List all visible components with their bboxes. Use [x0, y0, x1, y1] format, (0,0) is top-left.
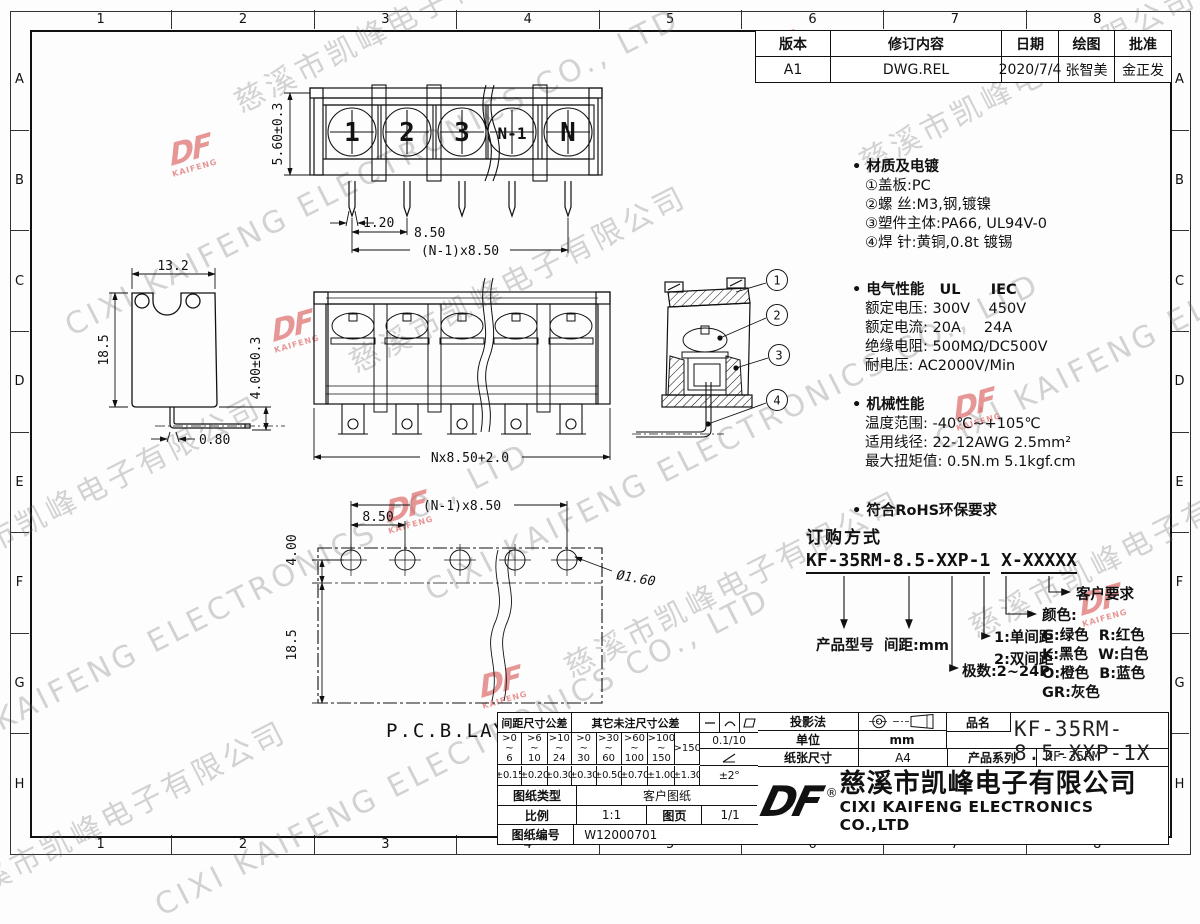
spec-rohs-section: • 符合RoHS环保要求	[852, 502, 1164, 521]
bracket-outline	[132, 293, 217, 407]
spec-line: • 符合RoHS环保要求	[852, 502, 1164, 521]
row-label: D	[1170, 332, 1189, 433]
tolerance-range: >60 ~ 100	[622, 733, 649, 765]
tolerance-range: >30 ~ 60	[597, 733, 622, 765]
spec-section-title: • 电气性能 UL IEC	[852, 281, 1164, 300]
tolerance-other-header: 其它未注尺寸公差	[572, 713, 701, 733]
title-block: 间距尺寸公差 其它未注尺寸公差 >0 ~ 6 >6 ~ 10 >10 ~ 24 …	[497, 712, 1169, 845]
company-name-cn: 慈溪市凯峰电子有限公司	[840, 770, 1168, 798]
tolerance-range: >6 ~ 10	[522, 733, 548, 765]
parallelogram-icon	[740, 713, 758, 733]
col-label: 6	[742, 10, 884, 29]
tolerance-value: ±0.30	[572, 766, 597, 786]
row-label: E	[10, 433, 29, 534]
spec-line: 最大扭矩值: 0.5N.m 5.1kgf.cm	[852, 453, 1164, 472]
separator-walls	[374, 278, 550, 432]
unit-label: 单位	[758, 731, 859, 749]
row-label: C	[1170, 231, 1189, 332]
revision-header: 绘图	[1059, 30, 1115, 56]
revision-header: 批准	[1115, 30, 1172, 56]
pcb-dimension-labels: (N-1)x8.50 8.50 4.00 18.5 Ø1.60 P.C.B.LA…	[285, 499, 657, 742]
spec-line: 适用线径: 22-12AWG 2.5mm²	[852, 434, 1164, 453]
tolerance-value: ±1.30	[675, 766, 700, 786]
col-label: 4	[457, 10, 599, 29]
dim-edge: 4.00	[285, 534, 300, 565]
paper-size-label: 纸张尺寸	[758, 749, 859, 767]
part-name-value: KF-35RM-8.5-XXP-1X	[1014, 717, 1168, 765]
dim-pitch: 8.50	[362, 510, 393, 525]
tolerance-range: >10 ~ 24	[548, 733, 572, 765]
block-body	[314, 292, 610, 404]
ordering-label-pitch: 间距:mm	[884, 634, 949, 655]
revision-date: 2020/7/4	[1002, 56, 1059, 82]
spec-line: 温度范围: -40℃~+105℃	[852, 415, 1164, 434]
angle-icon	[700, 749, 758, 766]
revision-table: 版本 修订内容 日期 绘图 批准 A1 DWG.REL 2020/7/4 张智美…	[755, 30, 1172, 83]
ordering-label-color-title: 颜色:	[1042, 604, 1077, 625]
pcb-layout-drawing: (N-1)x8.50 8.50 4.00 18.5 Ø1.60 P.C.B.LA…	[282, 495, 662, 745]
tolerance-value: ±0.20	[522, 766, 548, 786]
ordering-color-option: GR:灰色	[1042, 681, 1100, 702]
revision-header: 日期	[1002, 30, 1059, 56]
top-column-gutter: 1 2 3 4 5 6 7 8	[30, 10, 1168, 29]
screw-label: 3	[454, 118, 470, 148]
callout-balloons: 1 2 3 4	[767, 270, 790, 411]
screw-label: N-1	[498, 124, 527, 143]
section-front-view-drawing: Nx8.50+2.0	[230, 272, 650, 472]
row-label: C	[10, 231, 29, 332]
spec-line: ①盖板:PC	[852, 177, 1164, 196]
col-label: 3	[315, 10, 457, 29]
ordering-label-model: 产品型号	[816, 634, 874, 655]
callout-number: 4	[773, 394, 780, 408]
pcb-break-lines	[491, 550, 512, 701]
tolerance-value: ±1.00	[648, 766, 675, 786]
spec-material-section: • 材质及电镀 ①盖板:PC ②螺 丝:M3,钢,镀镍 ③塑件主体:PA66, …	[852, 158, 1164, 253]
drawing-type-label: 图纸类型	[498, 786, 577, 806]
pcb-dimensions	[312, 501, 612, 703]
spec-line: 额定电流: 20A 24A	[852, 319, 1164, 338]
screw-label: N	[560, 118, 576, 148]
company-name-en: CIXI KAIFENG ELECTRONICS CO.,LTD	[840, 798, 1168, 834]
section-side-view-drawing: 1 2 3 4	[632, 262, 807, 467]
dim-total: (N-1)x8.50	[421, 244, 499, 259]
dim-height: 5.60±0.3	[271, 103, 286, 166]
ordering-label-customer: 客户要求	[1076, 583, 1134, 604]
row-label: D	[10, 332, 29, 433]
dim-pin: 0.80	[199, 433, 230, 448]
page-label: 图页	[647, 806, 702, 825]
drawing-number-label: 图纸编号	[498, 825, 574, 844]
revision-approver: 金正发	[1115, 56, 1172, 82]
spec-line: ③塑件主体:PA66, UL94V-0	[852, 215, 1164, 234]
dim-total-label: Nx8.50+2.0	[431, 451, 509, 466]
col-label: 5	[600, 10, 742, 29]
tolerance-range: >0 ~ 30	[572, 733, 597, 765]
screw-number-labels: 1 2 3 N-1 N	[344, 118, 576, 148]
dim-width: 13.2	[157, 259, 188, 274]
drawing-number-value: W12000701	[574, 825, 758, 844]
screw-label: 1	[344, 118, 360, 148]
tolerance-range: >150	[675, 733, 700, 765]
flatness-tolerance-value: 0.1/10	[700, 733, 758, 749]
screw-label: 2	[399, 118, 415, 148]
straightness-icon	[700, 713, 720, 733]
projection-label: 投影法	[758, 713, 859, 731]
solder-pins	[349, 181, 571, 216]
scale-value: 1:1	[577, 806, 648, 825]
drawing-type-value: 客户图纸	[577, 786, 757, 806]
row-label: B	[10, 131, 29, 232]
title-block-right: 投影法 单位 mm 品名 KF-35RM-8	[758, 713, 1168, 844]
ordering-color-option: O:橙色 B:蓝色	[1042, 662, 1145, 683]
tolerance-pitch-header: 间距尺寸公差	[498, 713, 572, 733]
callout-number: 3	[775, 349, 782, 363]
callout-number: 1	[773, 274, 780, 288]
tolerance-value: ±0.70	[622, 766, 649, 786]
screw-clamp-section	[668, 326, 742, 395]
part-name-label: 品名	[946, 713, 1011, 732]
revision-version: A1	[756, 56, 831, 82]
spec-section-title: • 材质及电镀	[852, 158, 1164, 177]
spec-section-title: • 机械性能	[852, 396, 1164, 415]
row-label: F	[1170, 533, 1189, 634]
row-label: A	[1170, 30, 1189, 131]
registered-mark: ®	[826, 786, 838, 800]
dim-pitch: 8.50	[414, 226, 445, 241]
revision-header: 版本	[756, 30, 831, 56]
spec-line: 额定电压: 300V 450V	[852, 300, 1164, 319]
first-angle-projection-icon	[858, 713, 947, 731]
row-label: A	[10, 30, 29, 131]
specifications-block: • 材质及电镀 ①盖板:PC ②螺 丝:M3,钢,镀镍 ③塑件主体:PA66, …	[852, 158, 1164, 521]
row-label: H	[1170, 734, 1189, 834]
col-label: 1	[30, 10, 172, 29]
ordering-color-option: K:黑色 W:白色	[1042, 643, 1148, 664]
angle-tolerance-value: ±2°	[700, 766, 758, 786]
page-value: 1/1	[702, 806, 758, 825]
tolerance-value: ±0.15	[498, 766, 522, 786]
row-label: H	[10, 734, 29, 834]
spec-line: 耐电压: AC2000V/Min	[852, 357, 1164, 376]
revision-header-row: 版本 修订内容 日期 绘图 批准	[756, 30, 1172, 56]
spec-electrical-section: • 电气性能 UL IEC 额定电压: 300V 450V 额定电流: 20A …	[852, 281, 1164, 376]
row-label: B	[1170, 131, 1189, 232]
spec-line: ②螺 丝:M3,钢,镀镍	[852, 196, 1164, 215]
solder-pins	[338, 404, 586, 434]
tolerance-value: ±0.50	[597, 766, 622, 786]
company-block: DF ® 慈溪市凯峰电子有限公司 CIXI KAIFENG ELECTRONIC…	[758, 766, 1168, 838]
dim-height: 18.5	[97, 334, 112, 365]
callout-number: 2	[773, 309, 780, 323]
revision-drafter: 张智美	[1059, 56, 1115, 82]
tolerance-range: >100 ~ 150	[648, 733, 675, 765]
tolerance-value: ±0.30	[548, 766, 572, 786]
row-label: E	[1170, 433, 1189, 534]
scale-label: 比例	[498, 806, 577, 825]
row-label: G	[10, 634, 29, 735]
row-label: G	[1170, 634, 1189, 735]
revision-data-row: A1 DWG.REL 2020/7/4 张智美 金正发	[756, 56, 1172, 82]
flatness-arc-icon	[720, 713, 740, 733]
dim-pin-width: 1.20	[363, 216, 394, 231]
paper-size-value: A4	[859, 749, 948, 767]
pcb-holes	[335, 544, 583, 576]
dim-total: (N-1)x8.50	[423, 499, 501, 514]
dim-depth: 18.5	[285, 629, 300, 660]
row-label: F	[10, 533, 29, 634]
col-label: 8	[1027, 10, 1168, 29]
revision-description: DWG.REL	[831, 56, 1002, 82]
company-df-logo-icon: DF	[757, 782, 825, 822]
revision-header: 修订内容	[831, 30, 1002, 56]
tolerance-table: 间距尺寸公差 其它未注尺寸公差 >0 ~ 6 >6 ~ 10 >10 ~ 24 …	[498, 713, 758, 844]
col-label: 7	[884, 10, 1026, 29]
tolerance-range: >0 ~ 6	[498, 733, 522, 765]
ordering-color-option: G:绿色 R:红色	[1042, 624, 1145, 645]
unit-value: mm	[858, 731, 947, 749]
col-label: 2	[172, 10, 314, 29]
spec-mechanical-section: • 机械性能 温度范围: -40℃~+105℃ 适用线径: 22-12AWG 2…	[852, 396, 1164, 472]
left-row-gutter: A B C D E F G H	[10, 30, 29, 834]
front-view-drawing: 1 2 3 N-1 N 5.60±0.3 1.20 8.50 (N-1)x8.5…	[262, 85, 627, 263]
spec-line: ④焊 针:黄铜,0.8t 镀锡	[852, 234, 1164, 253]
engineering-drawing-page: { "border": { "cols": ["1","2","3","4","…	[0, 0, 1200, 864]
spec-line: 绝缘电阻: 500MΩ/DC500V	[852, 338, 1164, 357]
clamp-units	[331, 313, 593, 344]
dim-hole-diameter: Ø1.60	[615, 568, 656, 590]
right-row-gutter: A B C D E F G H	[1170, 30, 1189, 834]
